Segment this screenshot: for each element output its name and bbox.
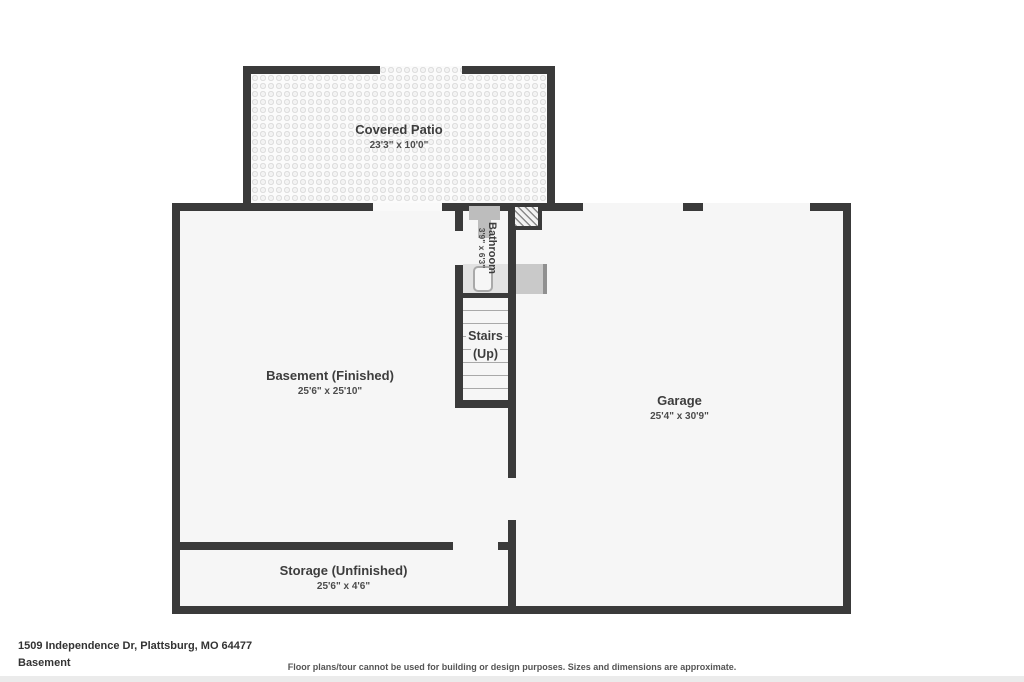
footer-divider-strip xyxy=(0,676,1024,682)
wall-patio-right xyxy=(547,66,555,211)
stairs-label: Stairs (Up) xyxy=(455,327,516,363)
wall-right-exterior xyxy=(843,203,851,614)
garage-dims: 25'4" x 30'9" xyxy=(516,411,843,423)
floor-plan-canvas: Covered Patio 23'3" x 10'0" Bathroom 3'9… xyxy=(0,0,1024,682)
wall-storage-divider xyxy=(172,542,453,550)
bathroom-label: Bathroom 3'9" x 6'3" xyxy=(451,212,523,284)
bathroom-name: Bathroom xyxy=(486,222,498,274)
garage-door-opening-right xyxy=(703,203,810,211)
wall-divider-lower xyxy=(508,520,516,614)
garage-label: Garage 25'4" x 30'9" xyxy=(516,394,843,422)
wall-patio-left xyxy=(243,66,251,211)
wall-patio-top-right xyxy=(462,66,555,74)
covered-patio-label: Covered Patio 23'3" x 10'0" xyxy=(251,123,547,151)
wall-left-exterior xyxy=(172,203,180,614)
storage-name: Storage (Unfinished) xyxy=(180,564,507,579)
basement-name: Basement (Finished) xyxy=(180,369,480,384)
covered-patio-name: Covered Patio xyxy=(251,123,547,138)
property-address: 1509 Independence Dr, Plattsburg, MO 644… xyxy=(18,640,252,652)
wall-patio-top-left xyxy=(243,66,380,74)
wall-storage-divider-stub xyxy=(498,542,516,550)
storage-label: Storage (Unfinished) 25'6" x 4'6" xyxy=(180,564,507,592)
garage-name: Garage xyxy=(516,394,843,409)
disclaimer-text: Floor plans/tour cannot be used for buil… xyxy=(0,662,1024,672)
basement-label: Basement (Finished) 25'6" x 25'10" xyxy=(180,369,480,397)
garage-door-opening-left xyxy=(583,203,683,211)
covered-patio-dims: 23'3" x 10'0" xyxy=(251,140,547,152)
wall-top-basement xyxy=(172,203,373,211)
wall-top-garage-mid xyxy=(683,203,703,211)
storage-dims: 25'6" x 4'6" xyxy=(180,581,507,593)
stairs-direction: (Up) xyxy=(471,347,500,362)
bathroom-dims: 3'9" x 6'3" xyxy=(476,228,485,268)
wall-stairs-bottom xyxy=(455,400,516,408)
stairs-name: Stairs xyxy=(466,329,505,344)
basement-dims: 25'6" x 25'10" xyxy=(180,386,480,398)
patio-slider-opening xyxy=(373,203,442,211)
